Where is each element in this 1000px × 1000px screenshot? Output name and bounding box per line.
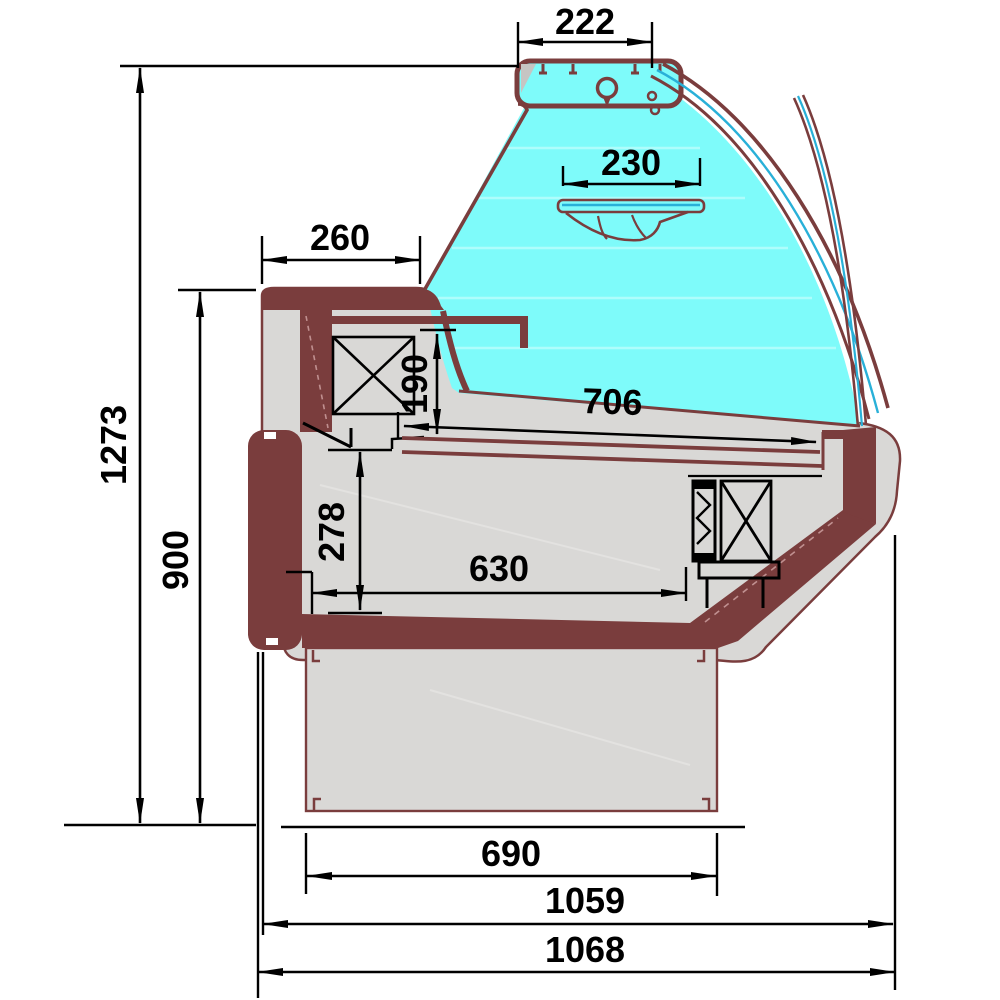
dim-top-canopy-width: 222	[555, 1, 615, 42]
fan-cap-bottom	[693, 553, 715, 561]
dim-overall-depth: 1068	[545, 929, 625, 970]
dim-overall-height: 1273	[93, 405, 134, 485]
worktop-channel-stub	[520, 316, 528, 348]
worktop-channel	[332, 316, 528, 324]
lamp-symbol	[598, 79, 617, 98]
bumper-notch-bottom	[266, 638, 278, 645]
dim-worktop-height: 900	[155, 530, 196, 590]
dim-inner-shelf-width: 230	[601, 142, 661, 183]
dim-rear-worktop-depth: 260	[310, 217, 370, 258]
case-body	[248, 61, 900, 811]
fan-cap-top	[693, 481, 715, 489]
display-case-cross-section-drawing: 222 230 260 1273 900 190 706 278 630 690…	[0, 0, 1000, 1000]
dim-under-counter-height: 278	[311, 502, 352, 562]
left-bumper-band	[248, 430, 302, 650]
rear-wall-column	[300, 310, 332, 432]
top-canopy-rail	[517, 61, 681, 114]
bumper-notch-top	[264, 432, 276, 439]
dim-plinth-depth: 690	[481, 833, 541, 874]
dim-display-deck-depth: 706	[582, 380, 643, 423]
glass-display-area	[425, 78, 860, 427]
front-support-stub	[822, 430, 846, 439]
dim-glass-opening-height: 190	[394, 354, 435, 414]
worktop-slab	[262, 288, 444, 310]
dim-under-counter-depth: 630	[469, 548, 529, 589]
front-glass-support	[843, 427, 876, 524]
insulation-box-lower	[721, 481, 771, 561]
plinth-base	[306, 648, 717, 811]
technical-drawing-page: 222 230 260 1273 900 190 706 278 630 690…	[0, 0, 1000, 1000]
dim-body-depth: 1059	[545, 880, 625, 921]
